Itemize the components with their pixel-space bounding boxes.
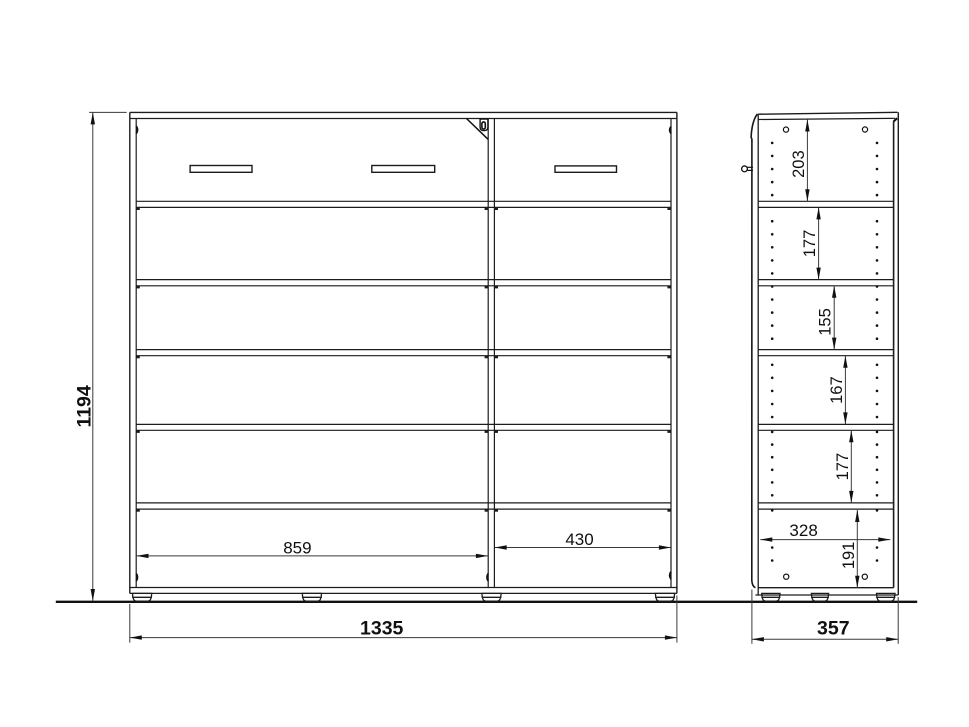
svg-text:859: 859	[283, 538, 311, 557]
svg-text:1335: 1335	[360, 618, 404, 640]
svg-text:328: 328	[789, 521, 817, 540]
svg-text:430: 430	[565, 530, 593, 549]
svg-text:203: 203	[790, 150, 808, 178]
svg-text:1194: 1194	[73, 385, 95, 427]
svg-text:177: 177	[834, 453, 852, 481]
svg-text:155: 155	[817, 308, 835, 336]
svg-text:357: 357	[817, 618, 850, 640]
svg-text:191: 191	[840, 542, 858, 570]
svg-text:177: 177	[801, 230, 819, 258]
svg-text:167: 167	[828, 376, 846, 404]
